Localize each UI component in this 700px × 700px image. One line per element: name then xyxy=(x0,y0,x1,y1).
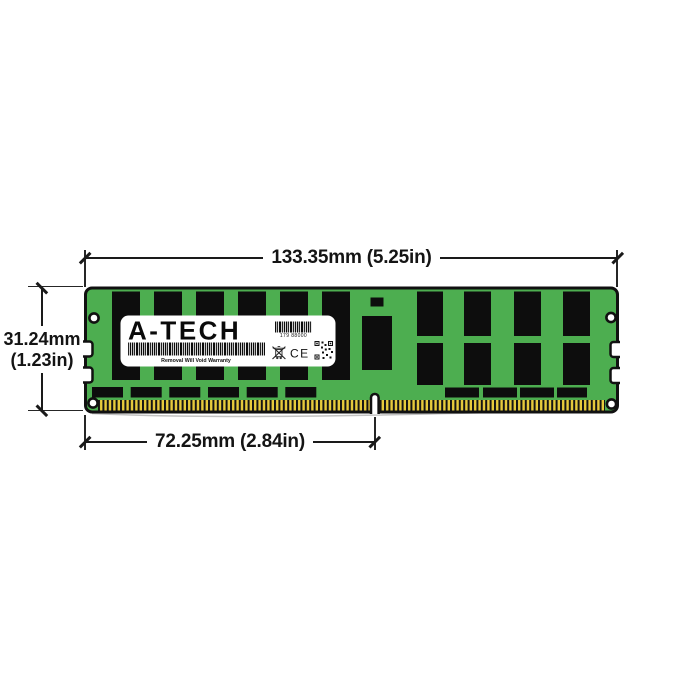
chip xyxy=(563,292,590,337)
height-dimension: 31.24mm (1.23in) xyxy=(0,288,84,411)
dimension-line xyxy=(313,441,375,443)
chip xyxy=(169,387,200,398)
a-tech-logo: A-TECH xyxy=(128,316,241,346)
dimension-line xyxy=(85,441,147,443)
dimension-line xyxy=(440,257,618,259)
register-chip xyxy=(362,316,392,370)
chip xyxy=(371,298,384,307)
memory-module-figure: A-TECH 179 88000 Removal Will Void Warra… xyxy=(0,0,700,700)
chip xyxy=(520,388,554,398)
height-in: (1.23in) xyxy=(3,350,80,371)
width-dimension: 133.35mm (5.25in) xyxy=(85,247,618,269)
pin-row xyxy=(98,400,605,411)
chip xyxy=(92,387,123,398)
chip xyxy=(285,387,316,398)
dimension-line xyxy=(41,288,43,326)
chip xyxy=(445,388,479,398)
dimension-line xyxy=(41,373,43,411)
dimension-line xyxy=(85,257,263,259)
pin-span-dimension-label: 72.25mm (2.84in) xyxy=(147,431,313,453)
chip xyxy=(563,343,590,385)
chip xyxy=(131,387,162,398)
ce-mark: CE xyxy=(290,347,310,361)
chip xyxy=(483,388,517,398)
warranty-text: Removal Will Void Warranty xyxy=(161,358,231,364)
chip xyxy=(557,388,587,398)
chip xyxy=(464,343,491,385)
chip xyxy=(514,343,541,385)
chip xyxy=(247,387,278,398)
serial-number: 179 88000 xyxy=(280,333,307,339)
product-label: A-TECH 179 88000 Removal Will Void Warra… xyxy=(121,316,336,367)
upc-barcode xyxy=(275,322,312,333)
chip xyxy=(208,387,239,398)
chip xyxy=(464,292,491,337)
height-mm: 31.24mm xyxy=(3,329,80,350)
width-dimension-label: 133.35mm (5.25in) xyxy=(263,247,439,269)
height-dimension-label: 31.24mm (1.23in) xyxy=(3,326,80,373)
chip xyxy=(514,292,541,337)
warranty-barcode xyxy=(128,343,265,356)
memory-module: A-TECH 179 88000 Removal Will Void Warra… xyxy=(78,288,625,420)
chip xyxy=(417,343,443,385)
product-dimension-diagram: A-TECH 179 88000 Removal Will Void Warra… xyxy=(0,0,700,700)
pin-span-dimension: 72.25mm (2.84in) xyxy=(85,431,375,453)
chip xyxy=(417,292,443,337)
